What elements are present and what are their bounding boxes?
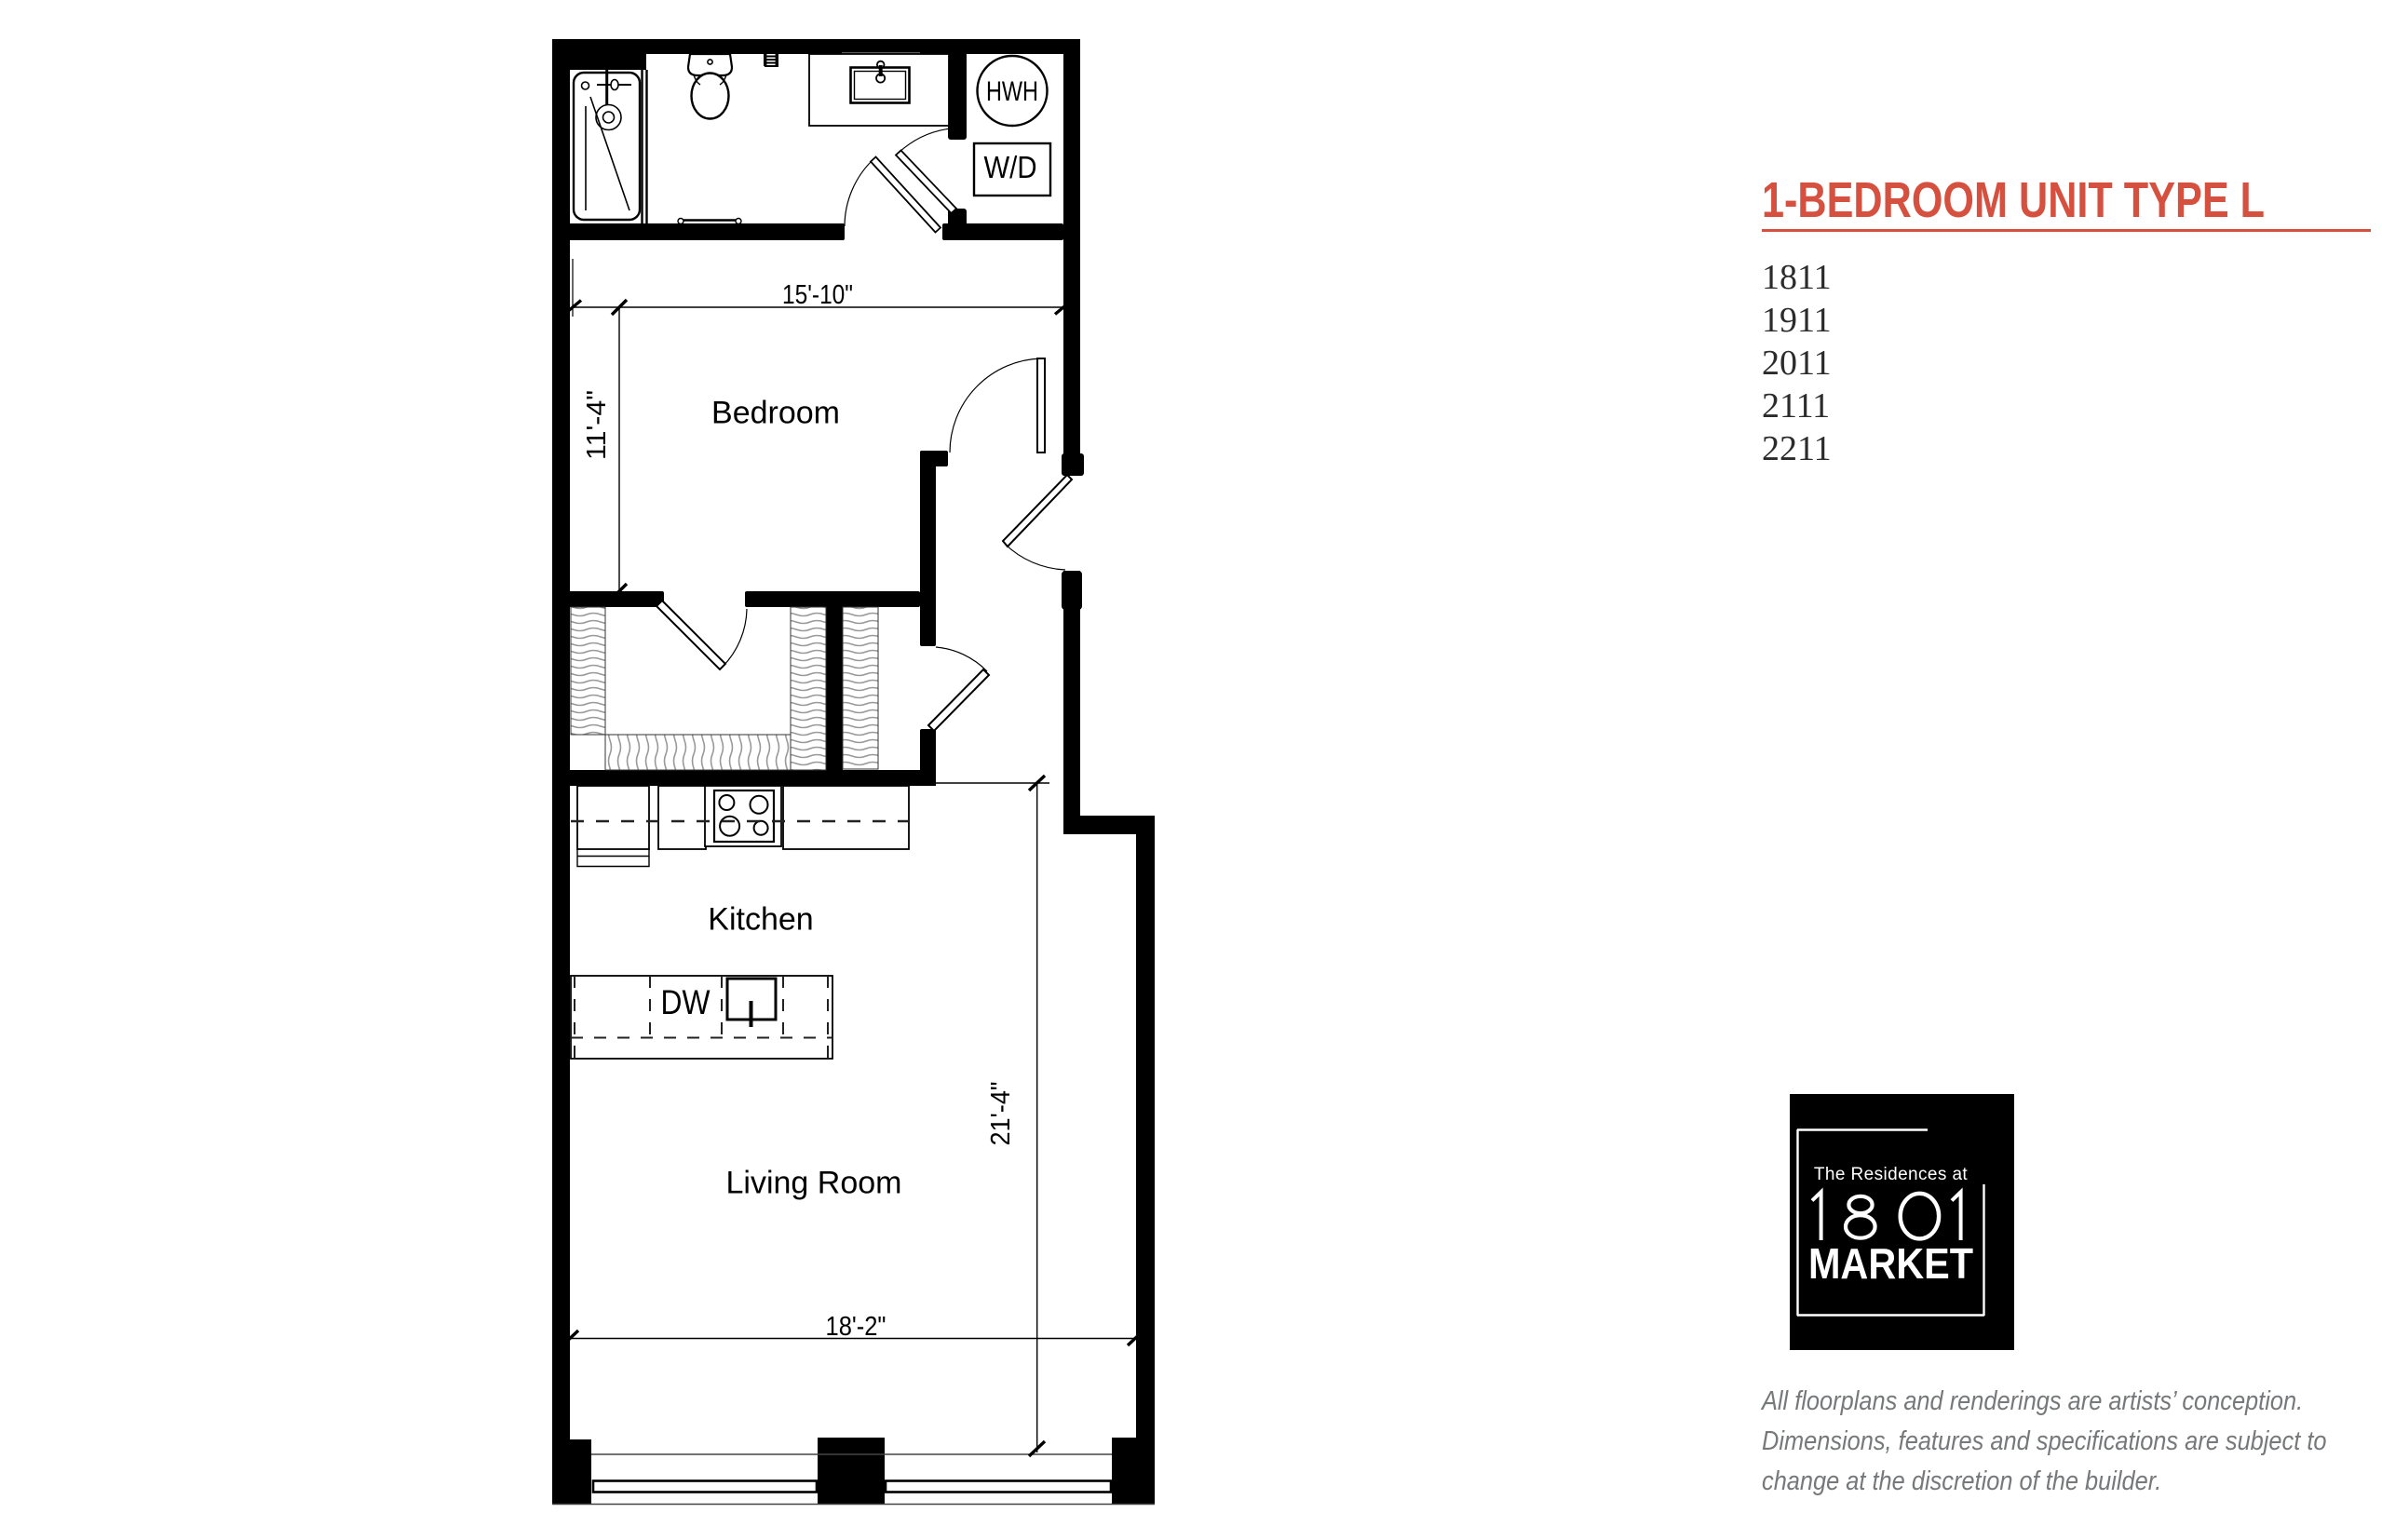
svg-text:15'-10": 15'-10" [782,280,853,310]
svg-text:Bedroom: Bedroom [711,396,840,431]
svg-text:Living Room: Living Room [726,1166,902,1201]
svg-text:HWH: HWH [986,76,1038,107]
svg-text:21'-4": 21'-4" [986,1082,1016,1146]
svg-text:W/D: W/D [984,150,1037,184]
svg-text:Kitchen: Kitchen [708,902,813,938]
svg-text:DW: DW [661,983,711,1021]
svg-text:11'-4": 11'-4" [582,390,612,460]
svg-text:18'-2": 18'-2" [826,1312,886,1342]
